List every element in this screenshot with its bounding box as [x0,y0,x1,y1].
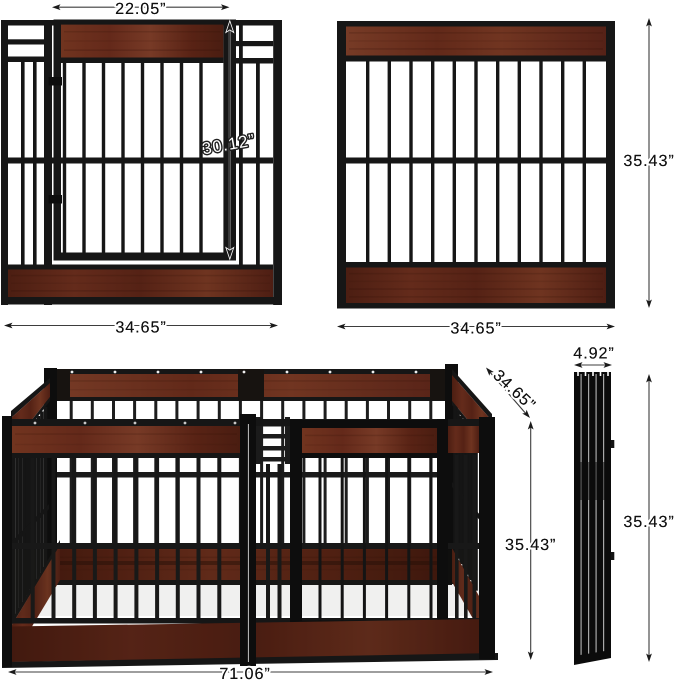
svg-text:35.43”: 35.43” [623,513,674,531]
svg-text:35.43”: 35.43” [623,152,674,170]
svg-text:4.92”: 4.92” [573,344,614,362]
svg-text:35.43”: 35.43” [505,536,556,554]
svg-text:34.65”: 34.65” [115,318,166,336]
svg-text:22.05”: 22.05” [115,0,166,18]
svg-text:34.65”: 34.65” [450,319,501,337]
svg-text:71.06”: 71.06” [219,665,270,683]
